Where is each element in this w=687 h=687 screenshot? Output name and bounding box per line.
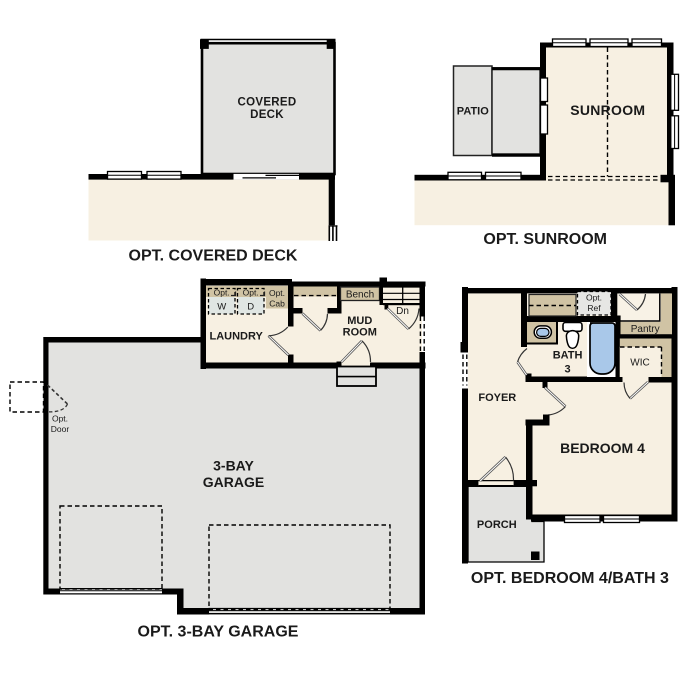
svg-text:Opt.: Opt. <box>269 288 285 298</box>
svg-text:BATH: BATH <box>553 350 583 362</box>
svg-text:Opt.: Opt. <box>214 288 230 298</box>
svg-text:MUD: MUD <box>347 315 372 327</box>
svg-text:OPT. SUNROOM: OPT. SUNROOM <box>483 231 607 248</box>
svg-text:SUNROOM: SUNROOM <box>570 102 645 118</box>
svg-text:Opt.: Opt. <box>52 414 68 424</box>
svg-text:Door: Door <box>51 424 70 434</box>
svg-text:PORCH: PORCH <box>477 519 517 531</box>
svg-text:Pantry: Pantry <box>631 324 660 335</box>
svg-text:GARAGE: GARAGE <box>203 474 264 490</box>
svg-text:WIC: WIC <box>630 357 649 368</box>
svg-text:LAUNDRY: LAUNDRY <box>210 331 264 343</box>
svg-text:PATIO: PATIO <box>457 106 489 118</box>
svg-text:W: W <box>217 302 226 313</box>
svg-text:Bench: Bench <box>346 290 374 301</box>
svg-text:OPT. BEDROOM 4/BATH 3: OPT. BEDROOM 4/BATH 3 <box>471 570 669 587</box>
svg-text:Opt.: Opt. <box>243 288 259 298</box>
svg-text:BEDROOM 4: BEDROOM 4 <box>560 440 645 456</box>
svg-text:D: D <box>247 302 254 313</box>
svg-text:3: 3 <box>565 363 571 375</box>
svg-text:ROOM: ROOM <box>343 326 377 338</box>
svg-text:Cab: Cab <box>269 299 285 309</box>
svg-text:FOYER: FOYER <box>478 392 516 404</box>
svg-text:OPT. COVERED DECK: OPT. COVERED DECK <box>129 248 298 265</box>
svg-text:Ref: Ref <box>587 303 601 313</box>
svg-text:Dn: Dn <box>396 306 409 317</box>
svg-text:Opt.: Opt. <box>586 292 602 302</box>
svg-text:DECK: DECK <box>250 109 284 121</box>
svg-text:3-BAY: 3-BAY <box>213 457 254 473</box>
svg-text:COVERED: COVERED <box>238 97 297 109</box>
svg-text:OPT. 3-BAY GARAGE: OPT. 3-BAY GARAGE <box>138 623 299 640</box>
